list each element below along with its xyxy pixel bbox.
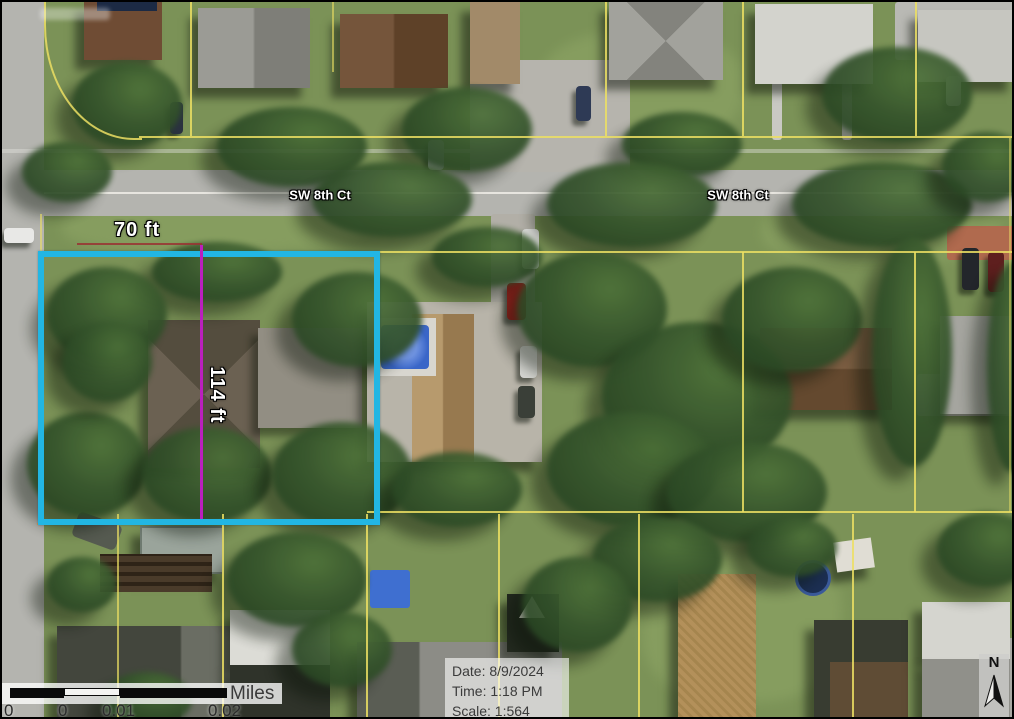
parcel-line [638, 514, 640, 719]
illegible-street-label [40, 8, 110, 20]
house [922, 602, 1010, 659]
scale-bar-segment [120, 688, 227, 698]
map-canvas[interactable]: SW 8th Ct SW 8th Ct 70 ft 114 ft Miles 0… [0, 0, 1014, 719]
info-date: Date: 8/9/2024 [452, 661, 569, 681]
vehicle [518, 386, 535, 418]
parcel-line [139, 136, 1014, 138]
shed [833, 538, 875, 573]
north-arrow-icon [984, 672, 1004, 710]
tree-canopy [432, 227, 542, 287]
street-label-west: SW 8th Ct [289, 188, 350, 203]
parcel-line [742, 252, 744, 512]
scale-tick: 0 [58, 701, 67, 719]
tree-canopy [522, 557, 632, 652]
tree-canopy [547, 162, 717, 247]
info-scale: Scale: 1:564 [452, 701, 569, 719]
house [198, 8, 310, 88]
measurement-line-red [77, 243, 202, 245]
tree-canopy [402, 87, 532, 172]
blue-tarp [370, 570, 410, 608]
vehicle [4, 228, 34, 243]
parcel-line [915, 2, 917, 136]
vehicle [520, 346, 537, 378]
parcel-width-label: 70 ft [114, 219, 160, 242]
house [470, 2, 520, 84]
house [340, 14, 448, 88]
tree-canopy [822, 47, 972, 142]
lot-split-line [200, 245, 203, 519]
parcel-line [366, 514, 368, 719]
scale-tick: 0 [4, 701, 13, 719]
parcel-line [367, 511, 1014, 513]
house [609, 2, 723, 80]
north-arrow: N [979, 654, 1009, 719]
parcel-line [742, 2, 744, 136]
north-arrow-label: N [979, 654, 1009, 672]
parcel-line [332, 2, 334, 72]
parcel-line [190, 2, 192, 136]
parcel-depth-label: 114 ft [204, 360, 228, 430]
walkway [772, 82, 782, 140]
parcel-line [852, 514, 854, 719]
tree-canopy [747, 517, 837, 577]
vehicle [576, 86, 591, 121]
scale-bar-segment [64, 688, 120, 696]
tree-canopy [872, 237, 952, 467]
scale-tick: 0.01 [102, 701, 135, 719]
info-time: Time: 1:18 PM [452, 681, 569, 701]
scale-tick: 0.02 [208, 701, 241, 719]
parcel-line [367, 251, 1014, 253]
scale-bar-segment [10, 688, 64, 698]
tree-canopy [47, 557, 117, 612]
tree-canopy [392, 452, 522, 527]
parcel-line [1009, 138, 1011, 512]
tree-canopy [22, 142, 112, 202]
parcel-line-curve [44, 2, 142, 140]
street-label-east: SW 8th Ct [707, 188, 768, 203]
tree-canopy [292, 612, 392, 687]
map-info-box: Date: 8/9/2024 Time: 1:18 PM Scale: 1:56… [445, 658, 569, 719]
tree-canopy [937, 512, 1014, 587]
parcel-line [914, 252, 916, 512]
parcel-line [40, 214, 42, 254]
parcel-line [605, 2, 607, 136]
vehicle [962, 248, 979, 290]
house-roof-section [830, 662, 908, 719]
